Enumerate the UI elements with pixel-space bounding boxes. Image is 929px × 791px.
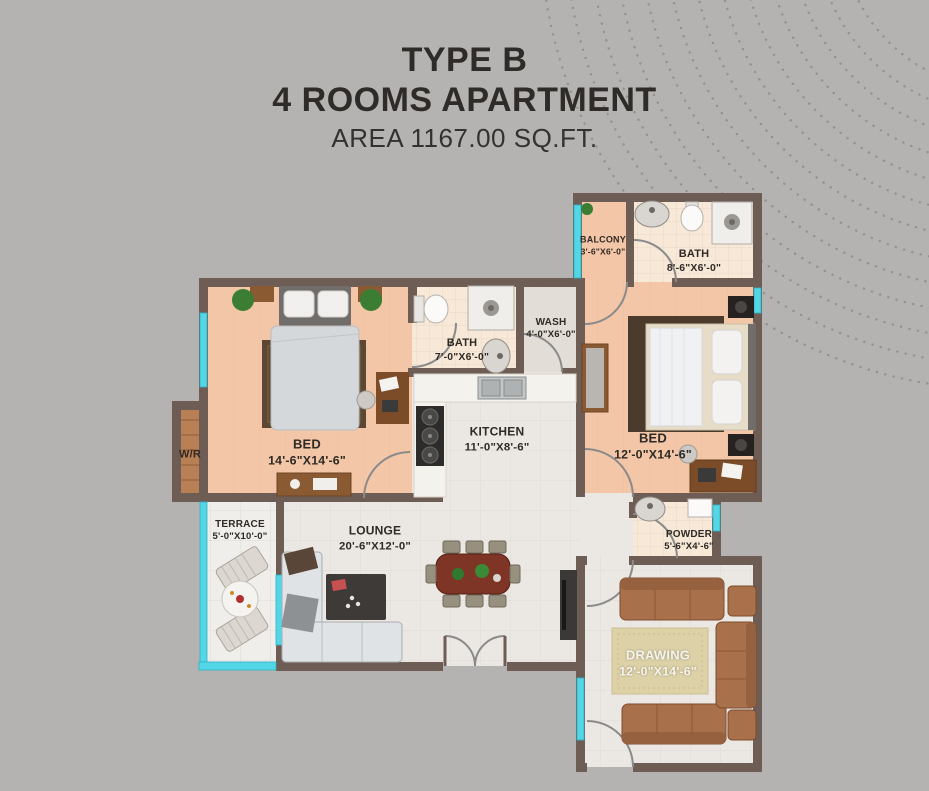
label-bed-left: BED14'-6"X14'-6" [268, 435, 346, 468]
throw-blanket [281, 593, 318, 632]
label-wardrobe: W/R [179, 448, 201, 463]
plant [236, 595, 244, 603]
label-bed-right: BED12'-0"X14'-6" [614, 429, 692, 462]
window-bed-right [754, 288, 761, 313]
label-wash: WASH4'-0"X6'-0" [526, 316, 576, 342]
label-lounge: LOUNGE20'-6"X12'-0" [339, 524, 411, 555]
terrace-glass-bottom [199, 662, 276, 670]
label-balcony: BALCONY3'-6"X6'-0" [580, 234, 626, 257]
plant [360, 289, 382, 311]
toilet [688, 499, 712, 517]
terrace-glass-left [200, 502, 207, 662]
label-powder: POWDER5'-6"X4'-6" [664, 528, 714, 554]
basin [635, 201, 669, 227]
plant [581, 203, 593, 215]
floor-plan-page: TYPE B 4 ROOMS APARTMENT AREA 1167.00 SQ… [0, 0, 929, 791]
ottoman [728, 710, 756, 740]
title-block: TYPE B 4 ROOMS APARTMENT AREA 1167.00 SQ… [0, 40, 929, 154]
toilet [424, 295, 448, 323]
label-bath-mid: BATH7'-0"X6'-0" [435, 336, 489, 364]
chair [357, 391, 375, 409]
plan-type-title: TYPE B [0, 40, 929, 80]
label-bath-top: BATH8'-6"X6'-0" [667, 247, 721, 275]
plan-name-title: 4 ROOMS APARTMENT [0, 80, 929, 120]
plant [232, 289, 254, 311]
toilet [681, 205, 703, 231]
label-terrace: TERRACE5'-0"X10'-0" [212, 518, 267, 544]
ottoman [728, 586, 756, 616]
label-drawing: DRAWING12'-0"X14'-6" [619, 646, 697, 679]
dining-table [436, 554, 510, 594]
plan-area-subtitle: AREA 1167.00 SQ.FT. [0, 123, 929, 154]
label-kitchen: KITCHEN11'-0"X8'-6" [465, 425, 530, 456]
window-powder [713, 505, 720, 531]
window-drawing [577, 678, 584, 740]
window-bed-left [200, 313, 207, 387]
